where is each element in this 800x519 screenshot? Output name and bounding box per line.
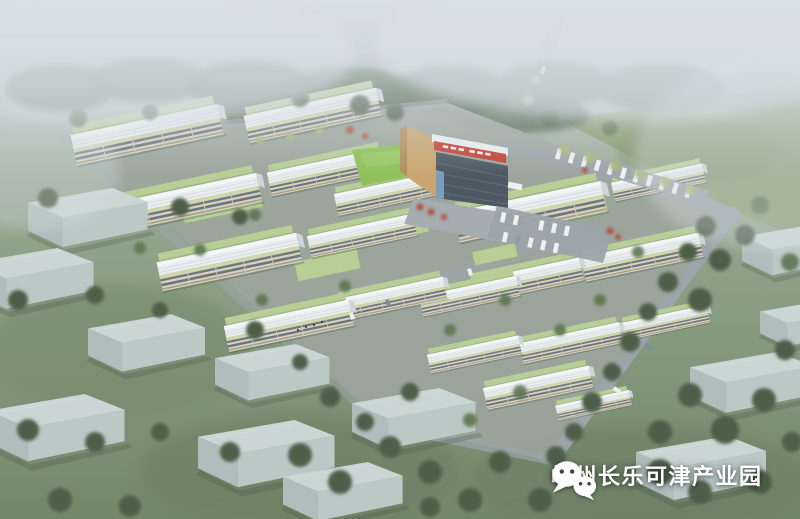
watermark: 嵊州长乐可津产业园: [551, 459, 763, 491]
fog: [0, 0, 800, 519]
aerial-rendering: 嵊州长乐可津产业园: [0, 0, 800, 519]
scene-canvas: [0, 0, 800, 519]
wechat-icon: [551, 459, 598, 502]
